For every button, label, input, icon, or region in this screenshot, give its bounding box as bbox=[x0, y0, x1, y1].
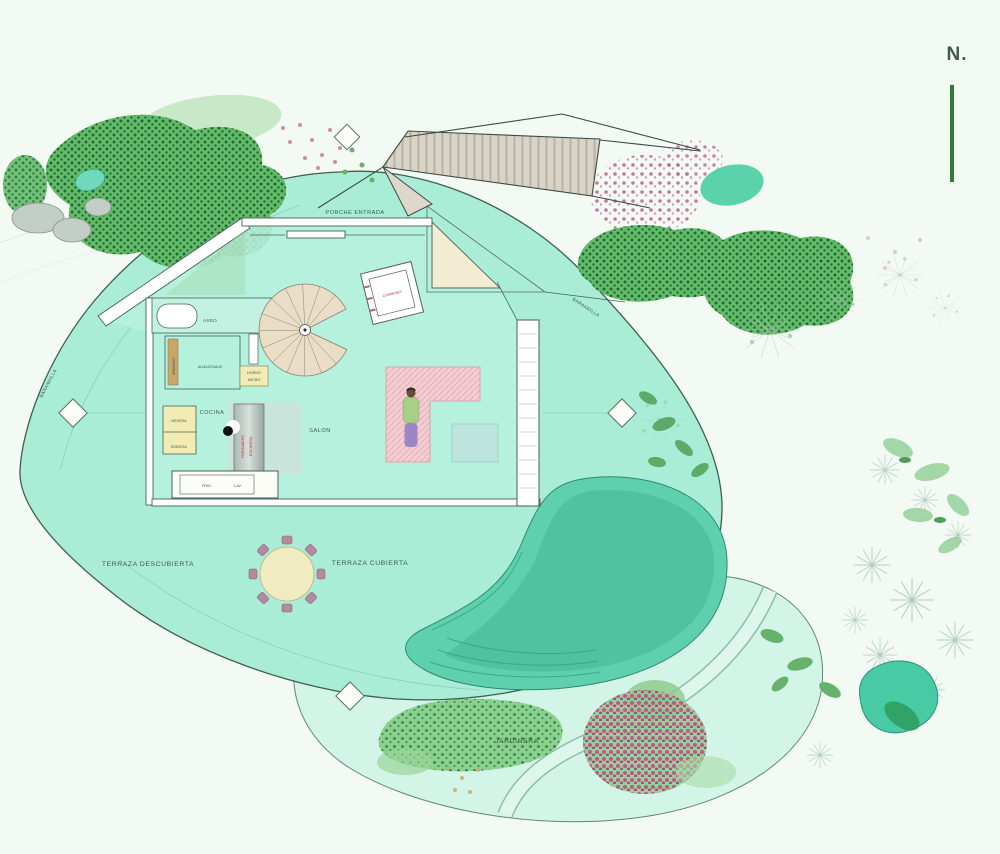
bathtub bbox=[157, 304, 197, 328]
fregadero-label: FREGADERO bbox=[241, 435, 245, 458]
lav-label: LAV. bbox=[234, 484, 241, 488]
glass-wall bbox=[517, 320, 539, 506]
wall-top bbox=[242, 218, 432, 226]
aseo-label: ASEO bbox=[203, 318, 217, 323]
salon-label: SALON bbox=[309, 428, 330, 434]
sink bbox=[223, 426, 233, 436]
nevera-label: NEVERA bbox=[171, 419, 187, 423]
porche-entrada-label: PORCHE ENTRADA bbox=[325, 210, 384, 216]
north-line bbox=[950, 85, 954, 182]
micro-label: MICRO bbox=[248, 378, 260, 382]
horno-label: HORNO bbox=[247, 371, 261, 375]
armario-label: ARMARIO bbox=[172, 358, 176, 375]
blue-rug bbox=[452, 424, 498, 462]
oven-micro-unit bbox=[240, 366, 268, 386]
north-label: N. bbox=[947, 44, 968, 65]
bodega-label: BODEGA bbox=[171, 445, 187, 449]
outdoor-table bbox=[249, 536, 325, 612]
jardinera-label: JARDINERA bbox=[495, 738, 539, 745]
terraza-cubierta-label: TERRAZA CUBIERTA bbox=[332, 560, 409, 567]
encimera-label: ENCIMERA bbox=[249, 436, 253, 456]
almacenaje-label: ALMACENAJE bbox=[198, 365, 223, 369]
round-table bbox=[260, 547, 314, 601]
cocina-label: COCINA bbox=[200, 410, 225, 416]
frig-label: FRIG. bbox=[202, 484, 212, 488]
site-plan-canvas: ASEO ARMARIO ALMACENAJE HORNO MICRO NEVE… bbox=[0, 0, 1000, 854]
wall-bottom bbox=[152, 499, 540, 506]
counter-band: FRIG. LAV. bbox=[172, 471, 278, 498]
terraza-descubierta-label: TERRAZA DESCUBIERTA bbox=[102, 561, 194, 568]
site-plan-drawing: ASEO ARMARIO ALMACENAJE HORNO MICRO NEVE… bbox=[0, 0, 1000, 854]
entrance-door bbox=[287, 231, 345, 238]
